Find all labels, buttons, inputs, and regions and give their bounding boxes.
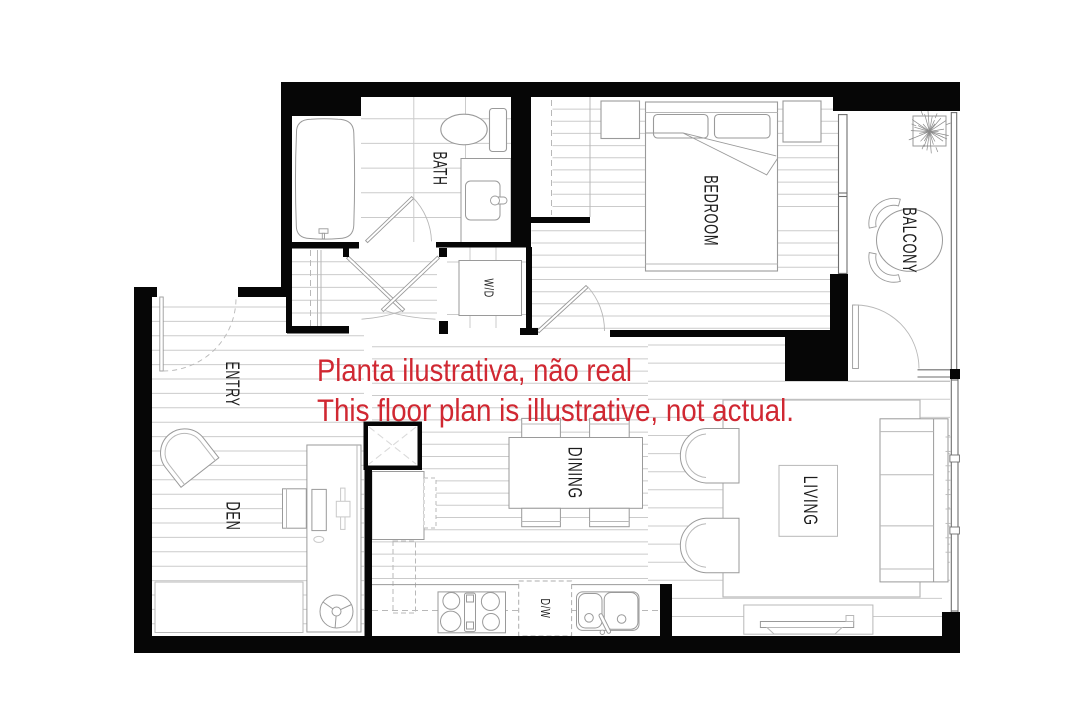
svg-text:Planta ilustrativa, não real: Planta ilustrativa, não real: [317, 352, 632, 388]
svg-text:W/D: W/D: [482, 278, 496, 298]
svg-text:This floor plan is illustrativ: This floor plan is illustrative, not act…: [317, 392, 794, 428]
svg-text:D/W: D/W: [538, 599, 552, 619]
svg-text:DEN: DEN: [222, 502, 243, 531]
svg-text:BATH: BATH: [429, 152, 450, 186]
svg-text:BEDROOM: BEDROOM: [700, 175, 721, 246]
svg-text:LIVING: LIVING: [799, 476, 820, 526]
svg-text:ENTRY: ENTRY: [221, 362, 242, 407]
svg-text:BALCONY: BALCONY: [898, 207, 919, 273]
svg-text:DINING: DINING: [564, 447, 585, 499]
